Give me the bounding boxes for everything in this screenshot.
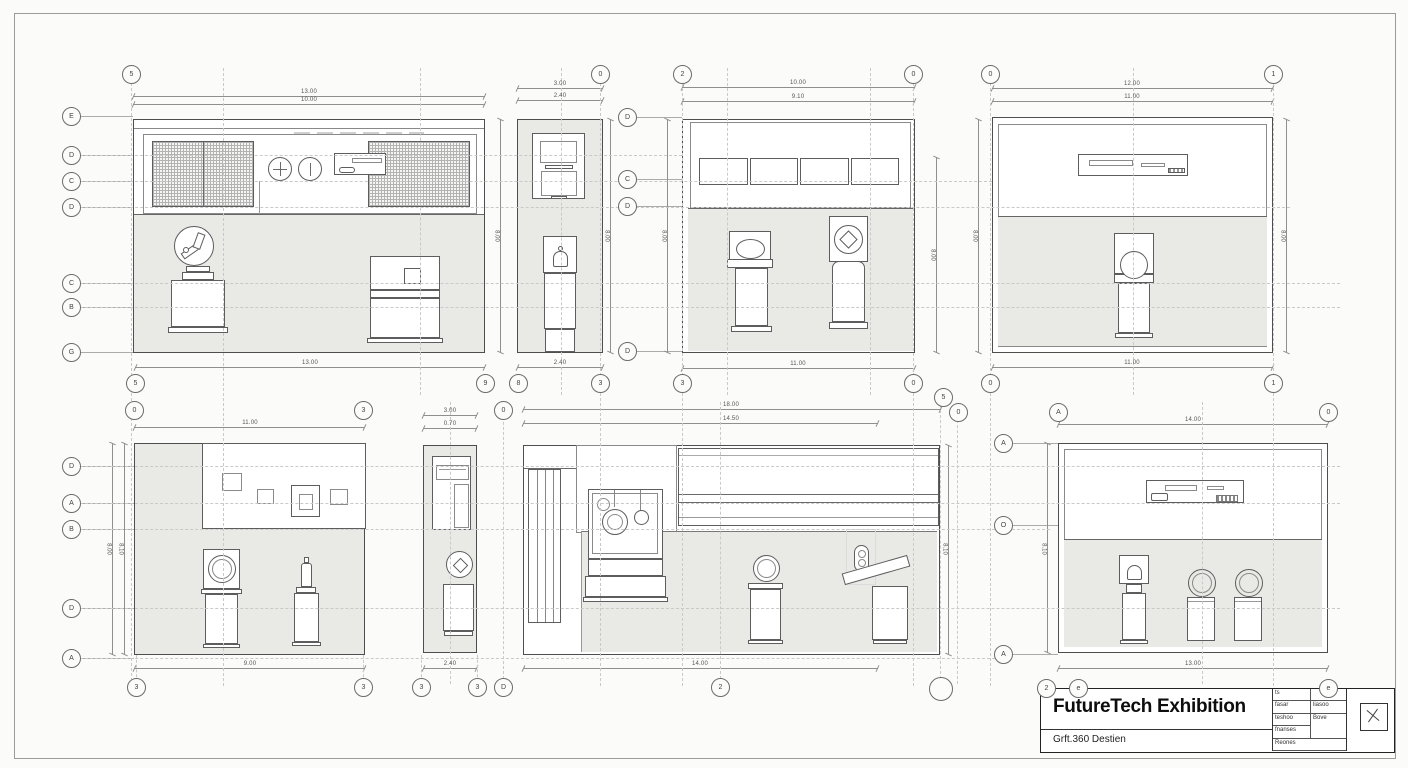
- grid-bubble: A: [994, 434, 1013, 453]
- grid-bubble: 0: [981, 374, 1000, 393]
- elevation-view-c: [682, 119, 915, 353]
- bottle-pedestal-base: [292, 642, 321, 646]
- grid-bubble: 1: [1264, 65, 1283, 84]
- dimension-label: 8.00: [603, 230, 609, 242]
- gallery-panel: [202, 443, 366, 529]
- dimension-label: 8.00: [493, 230, 499, 242]
- grid-bubble: A: [62, 494, 81, 513]
- dimension-label: 2.40: [554, 93, 566, 99]
- grid-bubble: e: [1319, 679, 1338, 698]
- slat-line: [545, 470, 546, 622]
- dimension-label: 11.00: [242, 420, 258, 426]
- dimension-line: [936, 157, 937, 353]
- dimension-line: [1058, 424, 1328, 425]
- stamp-icon: [1360, 703, 1388, 731]
- dimension-line: [135, 367, 485, 368]
- exhibit-egg: [736, 239, 765, 259]
- case-plinth: [585, 576, 666, 597]
- sign-badge: [1168, 168, 1185, 173]
- media-panel: [532, 133, 585, 199]
- grid-bubble: 9: [476, 374, 495, 393]
- vitrine-base: [545, 329, 575, 352]
- case-orb-large-inner: [607, 514, 623, 530]
- case-orb-small: [597, 498, 610, 511]
- dimension-label: 13.00: [1185, 661, 1201, 667]
- dimension-label: 0.70: [444, 421, 456, 427]
- ring-display-cabinet: [832, 261, 865, 322]
- dimension-label: 13.00: [302, 360, 318, 366]
- panel-side-screen: [454, 484, 469, 528]
- leader-line: [80, 116, 133, 117]
- pedestal-lip-line: [1235, 601, 1261, 602]
- gridline: [450, 402, 451, 684]
- grid-bubble: 5: [126, 374, 145, 393]
- stamp-cell: [1346, 689, 1395, 751]
- drawing-sheet: 13.00 10.00 13.00 8.00 3.00 2.40 2.40 8.…: [0, 0, 1408, 768]
- grid-bubble: C: [62, 274, 81, 293]
- arm-joint: [183, 247, 189, 253]
- grid-bubble: 3: [468, 678, 487, 697]
- grid-bubble: 3: [412, 678, 431, 697]
- dimension-line: [523, 409, 941, 410]
- gridline: [80, 181, 992, 182]
- ring-pedestal-2: [1234, 597, 1262, 641]
- slat-line: [537, 470, 538, 622]
- gridline: [80, 207, 1290, 208]
- dimension-line: [1058, 668, 1328, 669]
- gridline: [80, 155, 682, 156]
- dimension-line: [682, 87, 915, 88]
- right-pedestal: [872, 586, 908, 640]
- dimension-line: [517, 88, 603, 89]
- gridline: [940, 395, 941, 684]
- elevation-view-e: [134, 443, 365, 655]
- dimension-label: 8.10: [941, 543, 947, 555]
- grid-bubble: A: [994, 645, 1013, 664]
- dimension-label: 14.00: [1185, 417, 1201, 423]
- display-case-base: [367, 338, 443, 343]
- porthole-case-glass: [203, 549, 240, 589]
- grid-bubble: 3: [673, 374, 692, 393]
- elevation-view-g: [523, 445, 940, 655]
- grid-bubble: G: [62, 343, 81, 362]
- dimension-label: 8.00: [929, 249, 935, 261]
- dimension-line: [978, 119, 979, 353]
- gridline: [1133, 68, 1134, 395]
- ribbon-display: [678, 448, 939, 526]
- grid-bubble: D: [618, 108, 637, 127]
- table-cell: ts: [1273, 689, 1311, 701]
- shelf-bar: [545, 165, 573, 169]
- grid-bubble: O: [994, 516, 1013, 535]
- wall-sign: [1146, 480, 1244, 503]
- dome-vitrine-base: [1120, 640, 1148, 644]
- dimension-label: 3.00: [444, 408, 456, 414]
- sphere-pedestal: [750, 589, 781, 640]
- bottle-pedestal: [294, 593, 319, 642]
- gridline: [727, 68, 728, 395]
- mesh-divider: [203, 142, 204, 206]
- dial-diamond: [453, 558, 469, 574]
- grid-bubble: 2: [1037, 679, 1056, 698]
- leader-line: [636, 351, 682, 352]
- gridline: [80, 529, 1050, 530]
- dimension-line: [134, 668, 365, 669]
- gridline: [720, 402, 721, 684]
- gridline: [1202, 402, 1203, 684]
- egg-vitrine-cabinet: [735, 268, 768, 326]
- dial-mark: [310, 163, 311, 176]
- orb-vitrine-base: [1115, 333, 1153, 338]
- grid-bubble: 0: [1319, 403, 1338, 422]
- dimension-label: 14.50: [723, 416, 739, 422]
- dimension-label: 11.00: [790, 361, 806, 367]
- dimension-label: 3.00: [554, 81, 566, 87]
- egg-vitrine-base: [731, 326, 772, 332]
- screen-lower: [541, 171, 577, 196]
- egg-vitrine-glass: [729, 231, 771, 261]
- grid-bubble: 8: [509, 374, 528, 393]
- dimension-label: 18.00: [723, 402, 739, 408]
- mesh-panel-left: [152, 141, 254, 207]
- grid-bubble: E: [62, 107, 81, 126]
- leader-line: [636, 179, 682, 180]
- right-pedestal-base: [873, 640, 907, 644]
- grid-bubble: D: [62, 457, 81, 476]
- grid-bubble: A: [1049, 403, 1068, 422]
- gridline: [957, 405, 958, 684]
- sheet-title: FutureTech Exhibition: [1053, 696, 1246, 718]
- elevation-view-h: [1058, 443, 1328, 653]
- gridline: [80, 658, 1010, 659]
- screen-upper: [540, 141, 577, 163]
- ring: [834, 225, 863, 254]
- hanger-line: [614, 490, 615, 507]
- pedestal-base: [444, 631, 473, 636]
- wall-dial-2: [298, 157, 322, 181]
- dimension-label: 9.00: [244, 661, 256, 667]
- ring-display-box: [829, 216, 868, 262]
- grid-bubble: 0: [949, 403, 968, 422]
- gridline: [80, 283, 1340, 284]
- ring-exhibit-2: [1235, 569, 1263, 597]
- grid-bubble: 0: [981, 65, 1000, 84]
- gridline: [870, 68, 871, 395]
- sign-bar-small: [1207, 486, 1224, 490]
- vitrine-glass: [543, 236, 577, 273]
- panel-bar: [436, 465, 469, 480]
- sign-bar: [1165, 485, 1197, 491]
- dome-vitrine-glass: [1119, 555, 1149, 584]
- leader-line: [80, 352, 133, 353]
- grid-bubble: D: [494, 678, 513, 697]
- display-case-cabinet: [370, 298, 440, 338]
- grid-bubble: 5: [934, 388, 953, 407]
- title-block-table: ts fasar liasoo teshoo Bove fnanses Reon…: [1272, 689, 1346, 751]
- ring-pedestal-1: [1187, 597, 1215, 641]
- sign-pill: [339, 167, 355, 173]
- gridline: [503, 402, 504, 684]
- grid-bubble: 0: [494, 401, 513, 420]
- wall-sign: [334, 153, 386, 175]
- slat-column: [528, 469, 561, 623]
- orb-vitrine-cabinet: [1118, 283, 1150, 333]
- dimension-label: 11.00: [1124, 94, 1140, 100]
- art-square: [222, 473, 242, 491]
- grid-bubble: 0: [591, 65, 610, 84]
- case-orb-large: [602, 509, 628, 535]
- grid-bubble: 2: [711, 678, 730, 697]
- dimension-line: [682, 368, 915, 369]
- art-inner: [299, 494, 313, 510]
- media-panel: [432, 456, 471, 530]
- dimension-label: 9.10: [792, 94, 804, 100]
- vitrine-cabinet: [544, 273, 576, 329]
- table-cell: liasoo: [1311, 701, 1347, 714]
- case-base: [583, 597, 668, 602]
- grid-bubble: e: [1069, 679, 1088, 698]
- dimension-line: [523, 423, 878, 424]
- grid-bubble: A: [62, 649, 81, 668]
- dimension-label: 8.00: [1279, 230, 1285, 242]
- grid-bubble: 2: [673, 65, 692, 84]
- display-case-glass: [370, 256, 440, 290]
- dimension-line: [517, 100, 603, 101]
- grid-bubble: 1: [1264, 374, 1283, 393]
- dimension-label: 8.00: [971, 230, 977, 242]
- table-cell: fasar: [1273, 701, 1311, 714]
- sheet-subtitle: Grft.360 Destien: [1053, 734, 1126, 745]
- table-cell: Bove: [1311, 714, 1347, 739]
- porthole-ring-inner: [212, 559, 232, 579]
- upper-frame: [143, 134, 477, 214]
- dimension-label: 2.40: [444, 661, 456, 667]
- leader-line: [1012, 525, 1058, 526]
- gridline: [80, 503, 1340, 504]
- dimension-line: [133, 104, 485, 105]
- dimension-line: [682, 101, 915, 102]
- grid-bubble: B: [62, 298, 81, 317]
- pedestal-lip-line: [1188, 601, 1214, 602]
- sign-bar: [352, 158, 382, 163]
- robot-pedestal-base: [168, 327, 228, 333]
- grid-bubble: D: [618, 342, 637, 361]
- grid-bubble: 3: [354, 678, 373, 697]
- dimension-line: [517, 367, 603, 368]
- dimension-line: [124, 443, 125, 655]
- grid-bubble: D: [62, 599, 81, 618]
- art-square: [257, 489, 274, 504]
- sphere-exhibit: [753, 555, 780, 582]
- ribbon-line: [679, 494, 938, 495]
- dimension-line: [112, 443, 113, 655]
- dimension-line: [1286, 119, 1287, 353]
- dimension-label: 2.40: [554, 360, 566, 366]
- grid-bubble: C: [618, 170, 637, 189]
- porthole-case-cabinet: [205, 594, 238, 644]
- grid-bubble: 5: [122, 65, 141, 84]
- sign-hatch: [1216, 495, 1238, 502]
- drop-line: [259, 181, 260, 214]
- grid-bubble: 3: [591, 374, 610, 393]
- sphere-inner: [757, 559, 776, 578]
- dome-vitrine-neck: [1126, 584, 1142, 593]
- dimension-label: 14.00: [692, 661, 708, 667]
- lower-wall: [688, 208, 913, 351]
- screen-stand: [551, 196, 567, 199]
- grid-bubble: D: [618, 197, 637, 216]
- case-orb-right: [634, 510, 649, 525]
- arm-segment: [193, 232, 206, 250]
- grid-bubble: D: [62, 198, 81, 217]
- exhibit-dome: [1127, 565, 1142, 580]
- gridline: [80, 608, 1340, 609]
- ribbon-line: [679, 517, 938, 518]
- dome-vitrine-pedestal: [1122, 593, 1146, 640]
- sign-pill: [1151, 493, 1168, 501]
- leader-line: [1012, 654, 1058, 655]
- title-block: FutureTech Exhibition Grft.360 Destien t…: [1040, 688, 1395, 753]
- dimension-line: [948, 445, 949, 655]
- dimension-label: 10.00: [301, 97, 317, 103]
- sign-bar-small: [1141, 163, 1165, 167]
- robot-pedestal: [171, 280, 225, 327]
- framed-art: [291, 485, 320, 517]
- grid-bubble: B: [62, 520, 81, 539]
- dimension-label: 11.00: [1124, 360, 1140, 366]
- gridline: [223, 68, 224, 686]
- egg-vitrine-plate: [727, 259, 773, 268]
- title-divider: [1041, 729, 1273, 730]
- exhibit-orb: [1120, 251, 1148, 279]
- dimension-label: 13.00: [301, 89, 317, 95]
- panel-bar-line: [439, 469, 466, 470]
- wall-dial-1: [268, 157, 292, 181]
- grid-bubble: D: [62, 146, 81, 165]
- wall-cap-line: [134, 128, 484, 129]
- table-cell: fnanses: [1273, 726, 1311, 739]
- dial-mark: [280, 162, 281, 176]
- gridline: [561, 68, 562, 395]
- porthole-case-base: [203, 644, 240, 648]
- robot-mount-plate: [182, 272, 214, 280]
- dimension-label: 12.00: [1124, 81, 1140, 87]
- grid-bubble: 0: [904, 65, 923, 84]
- dimension-label: 8.00: [660, 230, 666, 242]
- ribbon-line: [679, 455, 938, 456]
- gridline: [80, 307, 1340, 308]
- grid-bubble: 3: [127, 678, 146, 697]
- slat-line: [553, 470, 554, 622]
- dimension-line: [1047, 443, 1048, 653]
- grid-bubble: 0: [904, 374, 923, 393]
- dimension-line: [134, 427, 365, 428]
- grid-bubble: 3: [354, 401, 373, 420]
- grid-bubble: C: [62, 172, 81, 191]
- sphere-pedestal-base: [748, 640, 783, 644]
- table-cell: Reones: [1273, 739, 1347, 751]
- dimension-line: [523, 668, 878, 669]
- gridline: [420, 68, 421, 395]
- ring-diamond: [839, 230, 857, 248]
- gridline: [80, 466, 1340, 467]
- ring-display-base: [829, 322, 868, 329]
- display-case-band: [370, 290, 440, 298]
- bottle-body: [301, 563, 312, 587]
- dimension-label: 8.10: [117, 543, 123, 555]
- exhibit-cube: [404, 268, 421, 284]
- dimension-label: 8.10: [1040, 543, 1046, 555]
- capsule-dot: [858, 550, 866, 558]
- robot-arm-head: [174, 226, 214, 266]
- table-cell: teshoo: [1273, 714, 1311, 726]
- grid-bubble: [929, 677, 953, 701]
- grid-bubble: 0: [125, 401, 144, 420]
- leader-line: [636, 117, 682, 118]
- dimension-label: 10.00: [790, 80, 806, 86]
- ring-inner: [1239, 573, 1259, 593]
- dimension-label: 8.00: [105, 543, 111, 555]
- sign-bar: [1089, 160, 1133, 166]
- hanger-line: [640, 490, 641, 511]
- porthole-ring: [208, 555, 236, 583]
